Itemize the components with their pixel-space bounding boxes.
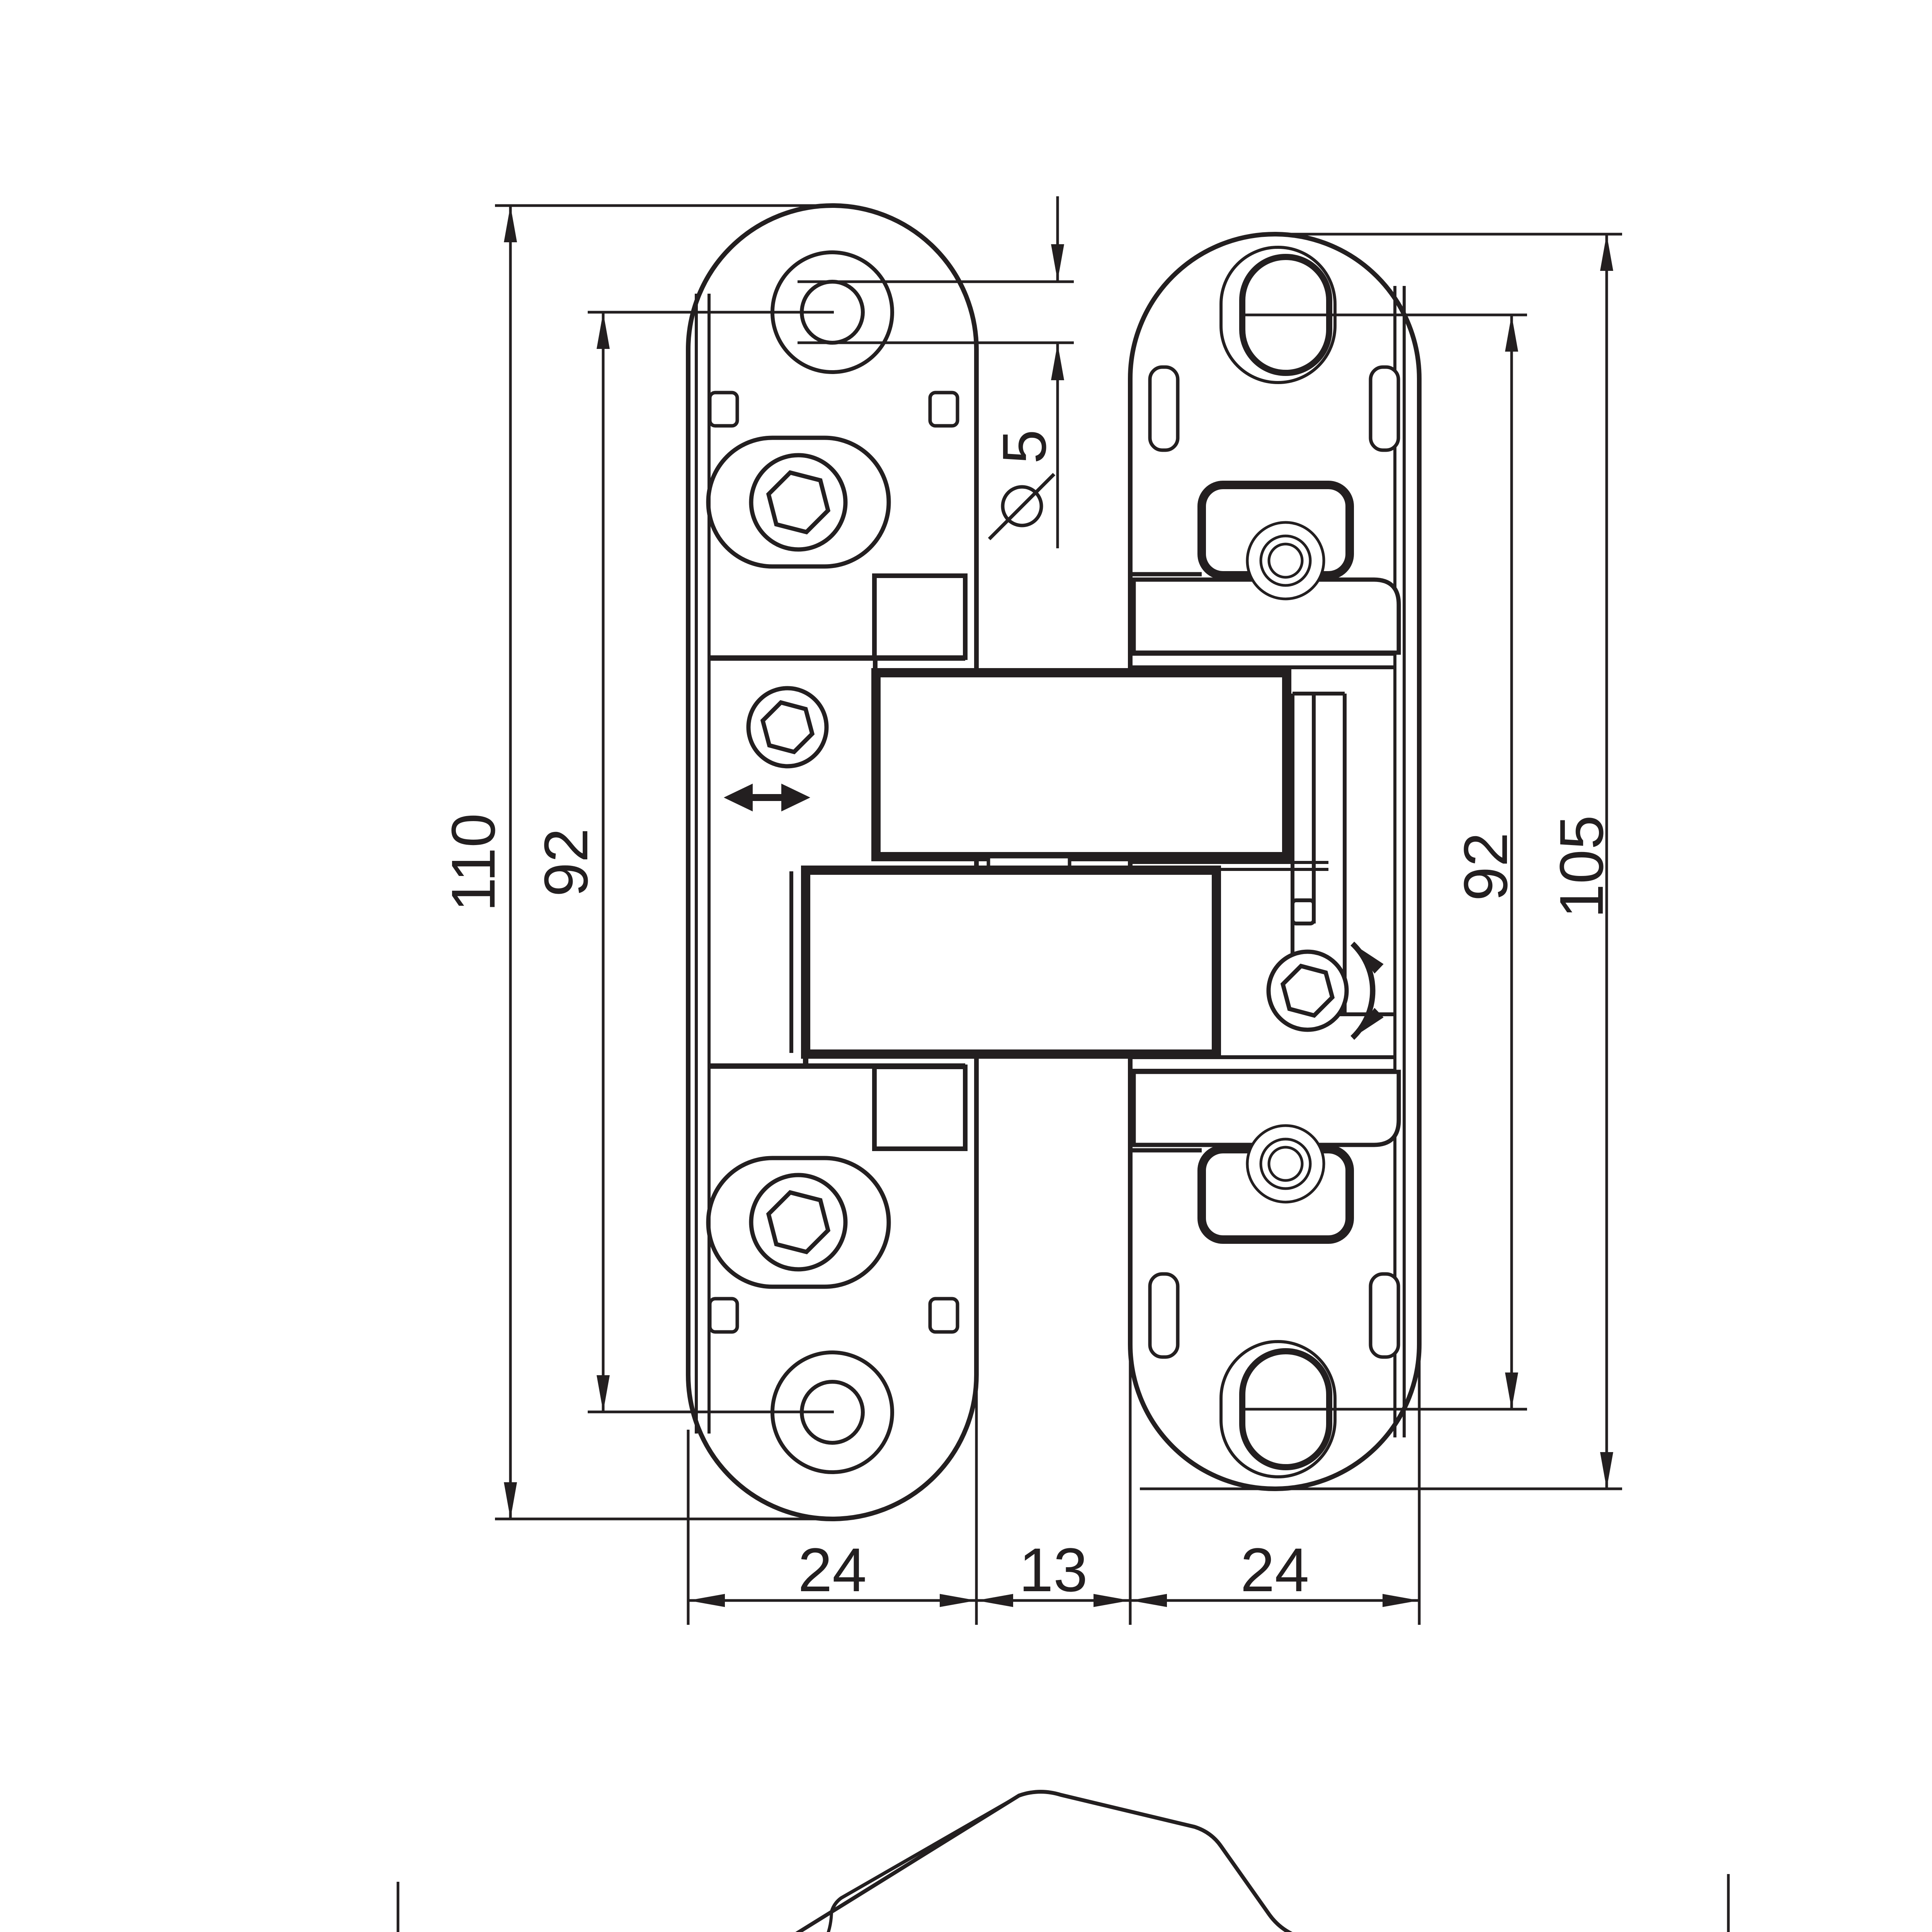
svg-text:24: 24	[798, 1535, 867, 1604]
svg-text:24: 24	[1240, 1535, 1309, 1604]
svg-text:105: 105	[1547, 815, 1616, 918]
svg-text:92: 92	[531, 828, 600, 897]
svg-text:13: 13	[1019, 1535, 1088, 1604]
svg-text:92: 92	[1451, 832, 1520, 901]
svg-text:110: 110	[439, 813, 508, 912]
svg-text:5: 5	[990, 430, 1059, 464]
